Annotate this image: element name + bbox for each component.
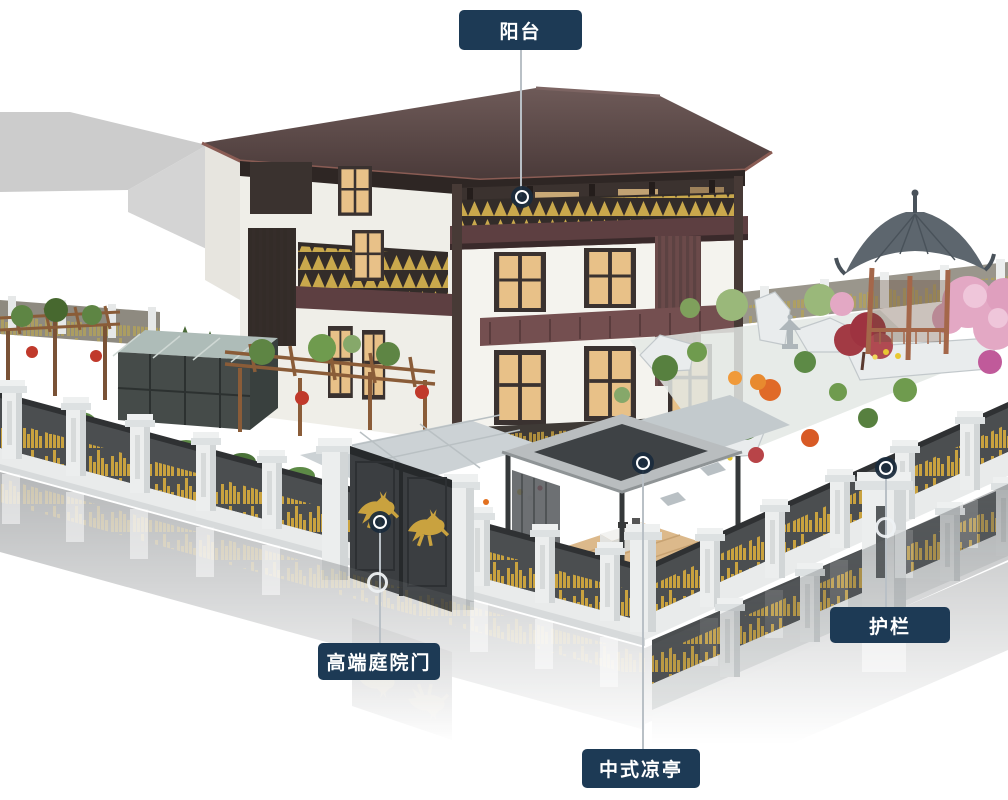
gate-hotspot-marker-icon[interactable] bbox=[369, 511, 391, 533]
pavilion-label: 中式凉亭 bbox=[582, 749, 700, 788]
guardrail-label: 护栏 bbox=[830, 607, 950, 643]
guardrail-callout-line bbox=[885, 470, 887, 607]
annotated-villa-rendering: 阳台 高端庭院门 中式凉亭 护栏 bbox=[0, 0, 1008, 800]
balcony-callout-line bbox=[520, 50, 522, 197]
villa-scene-illustration bbox=[0, 0, 1008, 800]
gate-secondary-ring-icon bbox=[367, 572, 388, 593]
guardrail-hotspot-marker-icon[interactable] bbox=[875, 457, 897, 479]
balcony-hotspot-marker-icon[interactable] bbox=[511, 186, 533, 208]
balcony-label: 阳台 bbox=[459, 10, 582, 50]
guardrail-secondary-ring-icon bbox=[875, 517, 896, 538]
pavilion-hotspot-marker-icon[interactable] bbox=[632, 452, 654, 474]
pavilion-callout-line bbox=[642, 465, 644, 749]
gate-label: 高端庭院门 bbox=[318, 643, 440, 680]
